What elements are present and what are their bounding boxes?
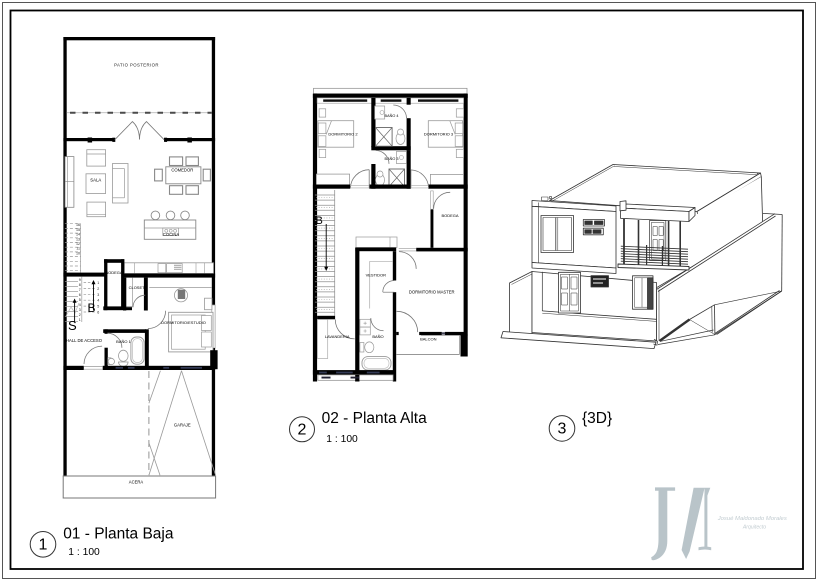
svg-text:1 : 100: 1 : 100 — [68, 547, 100, 558]
svg-text:4: 4 — [97, 299, 99, 303]
svg-text:15: 15 — [76, 228, 80, 232]
svg-text:B: B — [88, 301, 96, 315]
svg-text:8: 8 — [79, 283, 81, 287]
svg-text:3: 3 — [97, 293, 99, 297]
svg-text:BAÑO 1: BAÑO 1 — [116, 339, 131, 344]
svg-text:2: 2 — [97, 287, 99, 291]
svg-text:{3D}: {3D} — [582, 410, 612, 427]
svg-text:CLOSET: CLOSET — [129, 285, 146, 290]
svg-text:S: S — [68, 318, 77, 333]
svg-text:6: 6 — [97, 311, 99, 315]
svg-text:BAÑO 4: BAÑO 4 — [385, 113, 399, 118]
svg-text:DORMITORIO MASTER: DORMITORIO MASTER — [409, 289, 455, 294]
svg-text:BODEGA: BODEGA — [441, 213, 458, 218]
svg-text:13: 13 — [76, 237, 80, 241]
svg-text:PATIO POSTERIOR: PATIO POSTERIOR — [114, 63, 159, 68]
svg-text:3: 3 — [79, 308, 81, 312]
svg-text:11: 11 — [76, 247, 80, 251]
svg-text:02 - Planta Alta: 02 - Planta Alta — [322, 410, 428, 427]
svg-text:HALL DE ACCESO: HALL DE ACCESO — [66, 338, 103, 343]
svg-text:3: 3 — [558, 421, 567, 438]
svg-text:ACERA: ACERA — [129, 480, 144, 485]
svg-text:12: 12 — [76, 242, 80, 246]
svg-text:2: 2 — [298, 422, 307, 439]
svg-text:01 - Planta Baja: 01 - Planta Baja — [63, 525, 174, 542]
svg-text:Arquitecto: Arquitecto — [742, 525, 766, 531]
svg-text:1 : 100: 1 : 100 — [326, 434, 358, 445]
svg-text:COMEDOR: COMEDOR — [171, 167, 193, 172]
svg-text:5: 5 — [97, 305, 99, 309]
svg-text:B: B — [316, 215, 323, 227]
svg-text:Josué Maldonado Morales: Josué Maldonado Morales — [717, 516, 787, 522]
svg-text:16: 16 — [76, 223, 80, 227]
svg-text:SALA: SALA — [90, 177, 101, 182]
svg-text:4: 4 — [79, 303, 81, 307]
svg-text:6: 6 — [79, 293, 81, 297]
svg-text:DORMITORIO 2: DORMITORIO 2 — [328, 131, 358, 136]
svg-text:10: 10 — [76, 251, 80, 255]
svg-text:DORMITORIO/ESTUDIO: DORMITORIO/ESTUDIO — [161, 320, 206, 325]
svg-text:1: 1 — [79, 318, 81, 322]
svg-text:GARAJE: GARAJE — [174, 423, 191, 428]
svg-text:COCINA: COCINA — [163, 232, 179, 237]
svg-text:DORMITORIO 3: DORMITORIO 3 — [424, 131, 454, 136]
svg-text:VESTIDOR: VESTIDOR — [366, 272, 387, 277]
svg-text:14: 14 — [76, 233, 80, 237]
svg-text:5: 5 — [79, 298, 81, 302]
svg-text:LAVANDERIA: LAVANDERIA — [325, 334, 350, 339]
svg-text:9: 9 — [79, 278, 81, 282]
svg-text:1: 1 — [97, 281, 99, 285]
svg-text:BODEGA: BODEGA — [105, 270, 122, 275]
svg-text:7: 7 — [79, 288, 81, 292]
svg-text:2: 2 — [79, 313, 81, 317]
svg-text:BAÑO: BAÑO — [372, 334, 383, 339]
svg-text:BALCON: BALCON — [420, 337, 437, 342]
svg-text:1: 1 — [39, 537, 48, 554]
